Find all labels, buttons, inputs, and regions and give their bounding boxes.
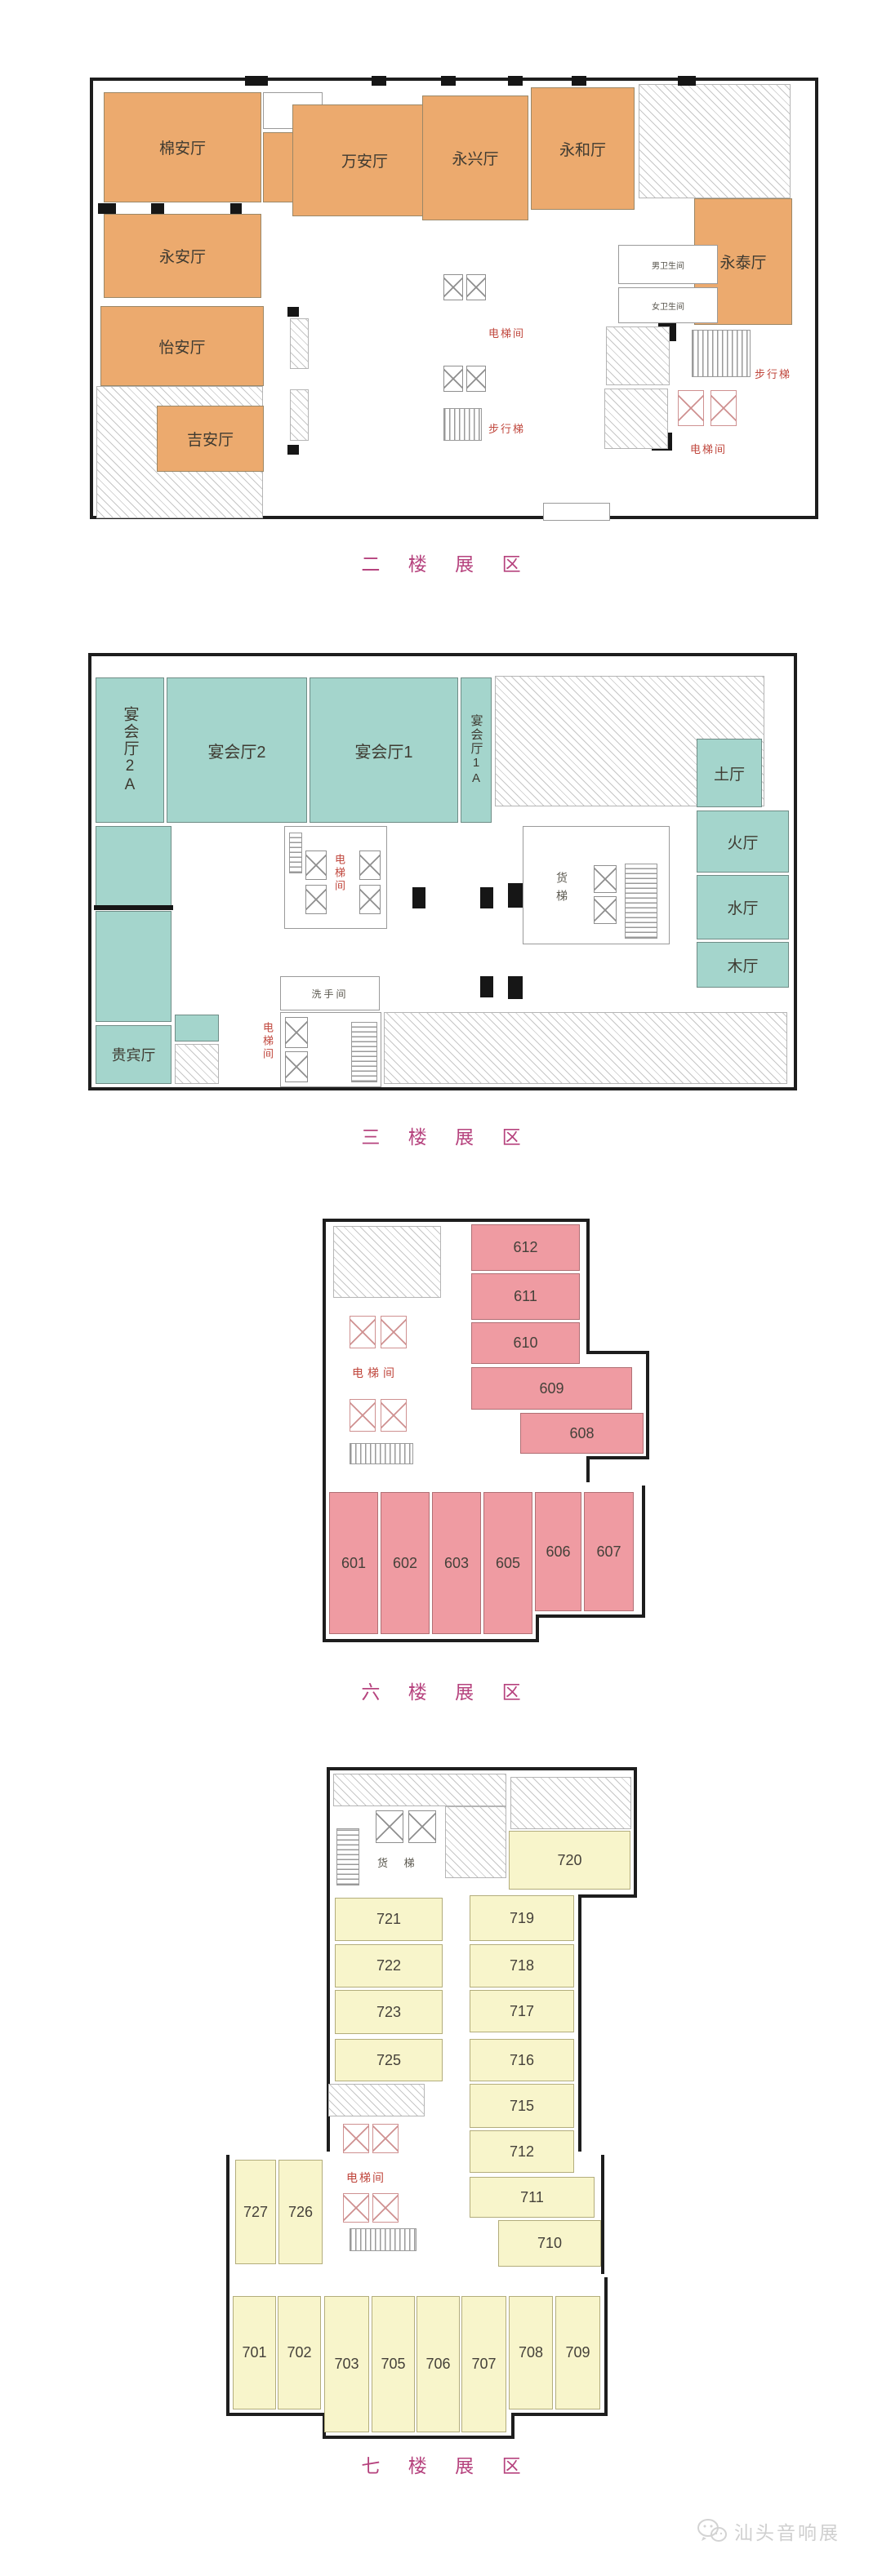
- hatch-area: [175, 1044, 219, 1084]
- elevator-label: 电梯间: [690, 441, 727, 456]
- column-block: [441, 76, 456, 86]
- room-722: 722: [335, 1944, 443, 1988]
- column-block: [480, 887, 493, 908]
- room-number: 608: [569, 1425, 594, 1442]
- page: 棉安厅 永安厅 怡安厅 吉安厅 万安厅 永兴厅 永和厅 永泰厅 电梯间 步行梯 …: [0, 0, 882, 2576]
- room-721: 721: [335, 1898, 443, 1941]
- stairs-icon: [692, 330, 751, 377]
- wall-segment: [94, 905, 173, 910]
- room-717: 717: [470, 1990, 574, 2032]
- hall-label: 永兴厅: [452, 147, 498, 169]
- washroom-label: 男卫生间: [652, 259, 684, 271]
- room-number: 723: [376, 2004, 401, 2021]
- room-725: 725: [335, 2039, 443, 2081]
- room-727: 727: [235, 2160, 276, 2264]
- side-room: [96, 826, 171, 907]
- hall-label: 火厅: [727, 831, 758, 853]
- elevator-icon: [305, 885, 327, 914]
- room-number: 715: [510, 2098, 534, 2115]
- hall-label: 土厅: [714, 762, 745, 784]
- room-number: 610: [513, 1335, 537, 1352]
- room-number: 711: [520, 2189, 544, 2206]
- elevator-icon: [343, 2193, 369, 2223]
- banquet-hall-2: 宴会厅2: [167, 677, 307, 823]
- freight-elevator-label: 货 梯: [377, 1854, 421, 1870]
- column-block: [572, 76, 586, 86]
- floor-title-2: 二 楼 展 区: [0, 549, 882, 576]
- room-611: 611: [471, 1273, 580, 1320]
- stairs-icon: [350, 1443, 413, 1464]
- room-number: 710: [537, 2235, 562, 2252]
- elevator-label: 电梯间: [260, 1022, 275, 1061]
- column-block: [372, 76, 386, 86]
- elevator-label: 电梯间: [352, 1365, 399, 1381]
- room-number: 718: [510, 1957, 534, 1974]
- wechat-icon: [696, 2517, 728, 2545]
- elevator-icon: [372, 2124, 399, 2153]
- elevator-icon: [678, 390, 704, 426]
- elevator-icon: [285, 1051, 308, 1082]
- column-block: [480, 976, 493, 997]
- room-number: 701: [242, 2344, 266, 2361]
- stairs-icon: [351, 1022, 377, 1082]
- elevator-icon: [710, 390, 737, 426]
- hatch-area: [604, 389, 668, 449]
- room-702: 702: [278, 2296, 321, 2409]
- hall-yong-an: 永安厅: [104, 214, 261, 298]
- freight-elevator-label: 货梯: [554, 872, 570, 908]
- elevator-icon: [343, 2124, 369, 2153]
- hall-ji-an: 吉安厅: [157, 406, 264, 472]
- elevator-icon: [305, 851, 327, 880]
- stairs-label: 步行梯: [488, 420, 525, 436]
- washroom-label: 洗手间: [311, 987, 348, 1001]
- hall-wan-an: 万安厅: [292, 104, 437, 216]
- room-707: 707: [461, 2296, 506, 2432]
- room-712: 712: [470, 2130, 574, 2173]
- hatch-area: [384, 1012, 787, 1084]
- room-710: 710: [498, 2220, 601, 2267]
- side-room: [175, 1015, 219, 1042]
- floor-title-6: 六 楼 展 区: [0, 1677, 882, 1704]
- hall-yong-xing: 永兴厅: [422, 95, 528, 220]
- column-block: [508, 76, 523, 86]
- room-number: 706: [425, 2356, 450, 2373]
- room-726: 726: [278, 2160, 323, 2264]
- room-number: 720: [557, 1852, 581, 1869]
- room-608: 608: [520, 1413, 644, 1454]
- hall-label: 木厅: [727, 954, 758, 976]
- elevator-icon: [359, 851, 381, 880]
- room-number: 611: [514, 1288, 537, 1305]
- room-708: 708: [509, 2296, 553, 2409]
- elevator-icon: [443, 274, 463, 300]
- hall-label: 宴会厅1: [354, 739, 412, 762]
- hall-earth: 土厅: [697, 739, 762, 807]
- hall-label: 宴会厅1A: [468, 714, 485, 787]
- elevator-icon: [381, 1316, 407, 1348]
- vip-hall: 贵宾厅: [96, 1025, 171, 1084]
- room-number: 726: [288, 2204, 313, 2221]
- column-block: [508, 883, 523, 908]
- room-number: 717: [510, 2003, 534, 2020]
- elevator-icon: [443, 366, 463, 392]
- room-number: 705: [381, 2356, 405, 2373]
- room-610: 610: [471, 1322, 580, 1364]
- hatch-area: [606, 326, 670, 385]
- room-701: 701: [233, 2296, 276, 2409]
- hatch-area: [328, 2084, 425, 2116]
- hall-label: 水厅: [727, 896, 758, 918]
- room-609: 609: [471, 1367, 632, 1410]
- watermark: 汕头音响展: [696, 2517, 840, 2545]
- hatch-area: [333, 1226, 441, 1298]
- hall-label: 宴会厅2A: [119, 706, 141, 795]
- elevator-icon: [376, 1810, 403, 1843]
- stairs-icon: [625, 864, 657, 939]
- elevator-icon: [381, 1399, 407, 1432]
- banquet-hall-1: 宴会厅1: [310, 677, 458, 823]
- elevator-icon: [594, 865, 617, 893]
- column-block: [287, 307, 299, 317]
- room-number: 709: [565, 2344, 590, 2361]
- room-711: 711: [470, 2177, 595, 2218]
- hatch-area: [290, 389, 309, 441]
- column-block: [287, 445, 299, 455]
- room-number: 712: [510, 2143, 534, 2161]
- room-number: 716: [510, 2052, 534, 2069]
- hall-label: 怡安厅: [158, 335, 205, 358]
- room-number: 606: [546, 1543, 570, 1561]
- floor-title-7: 七 楼 展 区: [0, 2450, 882, 2478]
- room-number: 719: [510, 1910, 534, 1927]
- stairs-icon: [350, 2228, 416, 2251]
- hatch-area: [445, 1806, 506, 1878]
- room-716: 716: [470, 2039, 574, 2081]
- room-number: 612: [513, 1239, 537, 1256]
- washroom: 洗手间: [280, 976, 380, 1010]
- hall-label: 永泰厅: [719, 251, 766, 273]
- hall-label: 永和厅: [559, 138, 606, 160]
- room-number: 721: [376, 1911, 401, 1928]
- elevator-icon: [350, 1316, 376, 1348]
- hall-mian-an: 棉安厅: [104, 92, 261, 202]
- column-block: [508, 976, 523, 999]
- elevator-label: 电梯间: [488, 325, 525, 340]
- elevator-label: 电梯间: [332, 854, 347, 893]
- hall-fire: 火厅: [697, 811, 789, 873]
- room-715: 715: [470, 2084, 574, 2128]
- hall-label: 贵宾厅: [112, 1044, 156, 1065]
- hall-wood: 木厅: [697, 942, 789, 988]
- stairs-icon: [336, 1828, 359, 1885]
- room-number: 702: [287, 2344, 311, 2361]
- lobby-desk: [543, 503, 610, 521]
- hatch-area: [333, 1774, 506, 1806]
- banquet-hall-2a: 宴会厅2A: [96, 677, 164, 823]
- hatch-area: [290, 318, 309, 369]
- room-number: 607: [596, 1543, 621, 1561]
- male-washroom: 男卫生间: [618, 245, 718, 284]
- room-706: 706: [416, 2296, 460, 2432]
- room-602: 602: [381, 1492, 430, 1634]
- room-number: 603: [444, 1555, 469, 1572]
- room-number: 601: [341, 1555, 366, 1572]
- hall-label: 棉安厅: [159, 136, 206, 158]
- column-block: [230, 203, 242, 214]
- hall-yi-an: 怡安厅: [100, 306, 264, 386]
- stairs-label: 步行梯: [755, 366, 791, 381]
- room-number: 605: [496, 1555, 520, 1572]
- elevator-icon: [285, 1017, 308, 1048]
- watermark-text: 汕头音响展: [734, 2517, 840, 2545]
- room-number: 725: [376, 2052, 401, 2069]
- room-603: 603: [432, 1492, 481, 1634]
- banquet-hall-1a: 宴会厅1A: [461, 677, 492, 823]
- room-705: 705: [372, 2296, 415, 2432]
- elevator-icon: [594, 896, 617, 924]
- room-718: 718: [470, 1944, 574, 1988]
- column-block: [678, 76, 696, 86]
- room-number: 708: [519, 2344, 543, 2361]
- elevator-icon: [408, 1810, 436, 1843]
- elevator-icon: [359, 885, 381, 914]
- column-block: [98, 203, 116, 214]
- elevator-icon: [372, 2193, 399, 2223]
- hall-label: 吉安厅: [187, 428, 234, 450]
- elevator-icon: [466, 366, 486, 392]
- room-605: 605: [483, 1492, 532, 1634]
- female-washroom: 女卫生间: [618, 287, 718, 323]
- column-block: [245, 76, 268, 86]
- room-601: 601: [329, 1492, 378, 1634]
- room-723: 723: [335, 1990, 443, 2034]
- room-number: 707: [471, 2356, 496, 2373]
- elevator-icon: [466, 274, 486, 300]
- room-number: 722: [376, 1957, 401, 1974]
- hall-label: 万安厅: [341, 149, 388, 171]
- room-number: 727: [243, 2204, 268, 2221]
- column-block: [151, 203, 164, 214]
- elevator-icon: [350, 1399, 376, 1432]
- room-719: 719: [470, 1895, 574, 1941]
- room-720: 720: [509, 1831, 630, 1890]
- room-612: 612: [471, 1224, 580, 1271]
- stairs-icon: [443, 408, 482, 441]
- stairs-icon: [289, 833, 302, 873]
- room-606: 606: [535, 1492, 581, 1611]
- column-block: [412, 887, 425, 908]
- hatch-area: [639, 84, 791, 198]
- room-703: 703: [324, 2296, 369, 2432]
- hall-label: 宴会厅2: [207, 739, 265, 762]
- side-room: [96, 911, 171, 1022]
- elevator-label: 电梯间: [346, 2170, 385, 2186]
- washroom-label: 女卫生间: [652, 300, 684, 312]
- room-number: 602: [393, 1555, 417, 1572]
- floor-title-3: 三 楼 展 区: [0, 1121, 882, 1149]
- hall-water: 水厅: [697, 875, 789, 939]
- room-number: 609: [539, 1380, 563, 1397]
- room-709: 709: [555, 2296, 600, 2409]
- room-number: 703: [334, 2356, 359, 2373]
- hall-label: 永安厅: [159, 245, 206, 267]
- hatch-area: [510, 1777, 631, 1829]
- room-607: 607: [584, 1492, 634, 1611]
- hall-yong-he: 永和厅: [531, 87, 635, 210]
